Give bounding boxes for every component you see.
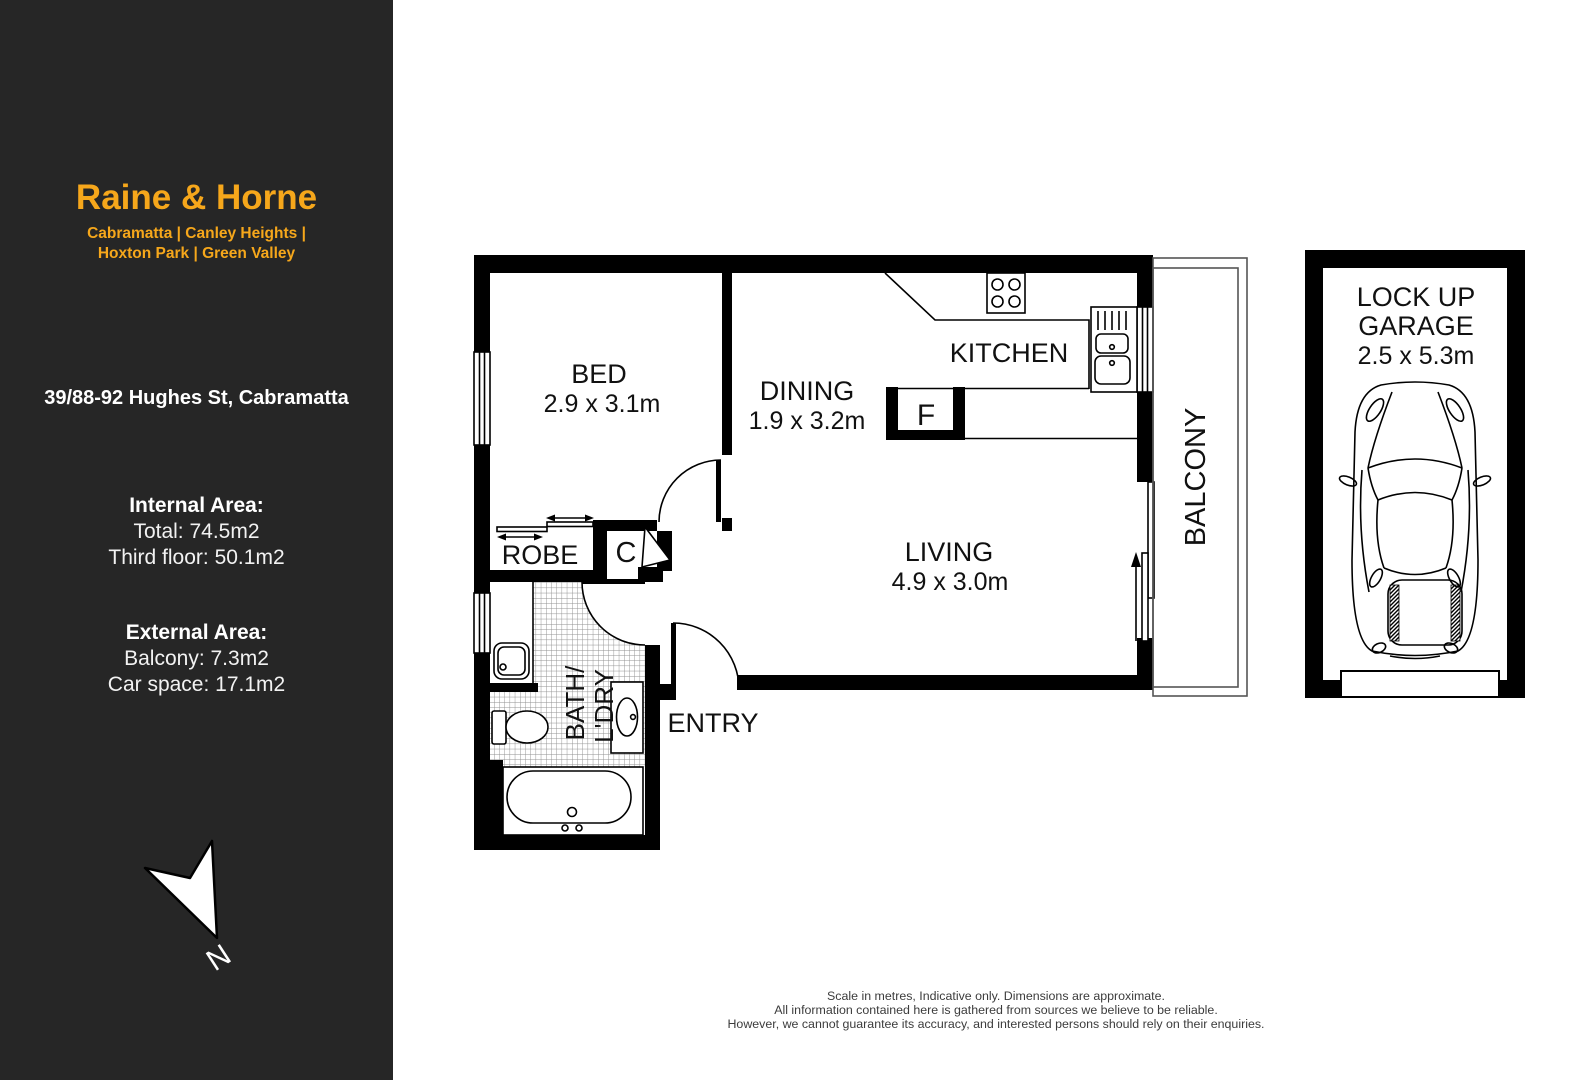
toilet xyxy=(492,711,548,744)
balcony-label: BALCONY xyxy=(1180,408,1212,547)
north-arrow: N xyxy=(145,841,237,978)
dining-label: DINING xyxy=(760,376,855,406)
kitchen-label: KITCHEN xyxy=(950,338,1069,368)
garage-label-line1: LOCK UP xyxy=(1357,282,1476,312)
disclaimer-line2: All information contained here is gather… xyxy=(393,1003,1575,1017)
kitchen-window xyxy=(1137,307,1153,392)
entry-label: ENTRY xyxy=(667,708,758,738)
bathroom-window xyxy=(474,593,490,653)
living-label: LIVING xyxy=(905,537,994,567)
fridge-label: F xyxy=(917,399,935,432)
entry-door xyxy=(671,623,739,690)
living-dims: 4.9 x 3.0m xyxy=(892,568,1009,596)
stove xyxy=(987,273,1025,313)
disclaimer-line1: Scale in metres, Indicative only. Dimens… xyxy=(393,989,1575,1003)
garage-label-line2: GARAGE xyxy=(1358,311,1474,341)
laundry-tub xyxy=(494,643,529,679)
bedroom-door xyxy=(659,460,721,522)
bed-dims: 2.9 x 3.1m xyxy=(544,390,661,418)
robe-sliding-doors xyxy=(497,515,594,541)
closet-label: C xyxy=(616,537,637,569)
car xyxy=(1338,382,1492,659)
bath-label-line2: L'DRY xyxy=(589,669,619,743)
balcony-sliding-door xyxy=(1131,482,1154,641)
kitchen-sink xyxy=(1091,307,1137,392)
north-label: N xyxy=(201,938,237,977)
robe-label: ROBE xyxy=(502,540,579,570)
bath-label-line1: BATH/ xyxy=(560,665,590,740)
garage-door xyxy=(1341,671,1499,697)
bathtub xyxy=(503,767,643,835)
bedroom-window xyxy=(474,352,490,445)
bed-label: BED xyxy=(571,359,627,389)
disclaimer-line3: However, we cannot guarantee its accurac… xyxy=(393,1017,1575,1031)
floorplan-svg: N xyxy=(0,0,1575,1080)
disclaimer: Scale in metres, Indicative only. Dimens… xyxy=(393,989,1575,1032)
dining-dims: 1.9 x 3.2m xyxy=(749,407,866,435)
garage-dims: 2.5 x 5.3m xyxy=(1358,342,1475,370)
